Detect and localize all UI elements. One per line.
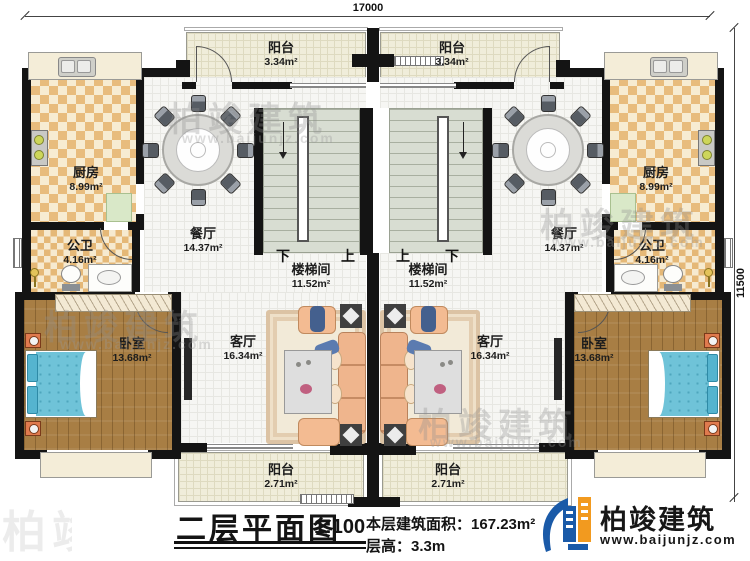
- chair-icon: [492, 143, 509, 158]
- toilet-tank: [664, 284, 682, 291]
- dining-table-center: [540, 142, 556, 158]
- table-decor: [306, 360, 311, 365]
- stair-direction-down-left: 下: [276, 246, 290, 266]
- floor-height-label: 层高：: [366, 538, 411, 555]
- burner: [702, 135, 712, 145]
- table-decor: [440, 362, 445, 367]
- sliding-door: [207, 444, 293, 449]
- room-label-kitchen-left: 厨房 8.99m²: [69, 166, 102, 193]
- burner: [702, 150, 712, 160]
- stair-railing: [437, 116, 449, 242]
- room-label-stairwell-right: 楼梯间 11.52m²: [408, 263, 447, 290]
- pillow-icon: [707, 354, 718, 382]
- window: [290, 83, 366, 88]
- wall-segment: [22, 222, 104, 230]
- wall-segment: [182, 82, 196, 89]
- title-underline: [174, 541, 366, 544]
- wall-segment: [15, 292, 24, 459]
- balcony-rail: [379, 27, 563, 31]
- room-label-living-right: 客厅 16.34m²: [470, 335, 509, 362]
- pillow-icon: [707, 386, 718, 414]
- sink-basin: [669, 60, 683, 73]
- room-label-living-left: 客厅 16.34m²: [223, 335, 262, 362]
- room-label-balcony-bottom-left: 阳台 2.71m²: [264, 463, 297, 490]
- stair-arrow-head: [459, 152, 467, 159]
- wall-segment: [367, 253, 379, 445]
- room-label-balcony-top-right: 阳台 3.34m²: [435, 41, 468, 68]
- pillow-icon: [27, 386, 38, 414]
- wall-segment: [232, 82, 292, 89]
- watermark-text: 柏竣建筑: [2, 496, 72, 560]
- title-underline: [174, 547, 366, 549]
- nightstand-icon: [25, 333, 41, 348]
- room-label-bedroom-right: 卧室 13.68m²: [574, 337, 613, 364]
- burner: [34, 150, 44, 160]
- pillow-icon: [27, 354, 38, 382]
- dimension-line-top: [25, 16, 710, 17]
- room-label-stairwell-left: 楼梯间 11.52m²: [291, 263, 330, 290]
- wall-segment: [132, 230, 140, 292]
- watermark-url: www.baijunjz.com: [60, 336, 213, 352]
- bathroom-sink-icon: [621, 270, 645, 285]
- floor-height-value: 3.3m: [411, 538, 445, 555]
- wall-segment: [715, 68, 724, 298]
- window: [380, 83, 456, 88]
- nightstand-icon: [25, 421, 41, 436]
- kitchen-mat: [106, 193, 132, 222]
- wall-segment: [148, 450, 181, 459]
- door-leaf: [549, 46, 550, 82]
- burner: [34, 135, 44, 145]
- sink-basin: [61, 60, 75, 73]
- window: [724, 238, 733, 268]
- shower-stem: [34, 277, 36, 287]
- room-label-bath-left: 公卫 4.16m²: [63, 239, 96, 266]
- wall-segment: [454, 82, 514, 89]
- floor-height-text: 层高：3.3m: [366, 535, 445, 556]
- toilet-icon: [663, 265, 683, 283]
- sink-basin: [653, 60, 667, 73]
- bay-window: [594, 452, 706, 478]
- tv-icon: [554, 338, 562, 400]
- balcony-rail: [184, 27, 368, 31]
- brand-url: www.baijunjz.com: [600, 532, 736, 547]
- wall-segment: [136, 77, 144, 184]
- brand-logo-icon: [538, 492, 598, 556]
- person-figure: [310, 306, 325, 332]
- watermark-url: www.baijunjz.com: [552, 234, 705, 250]
- bathroom-sink-icon: [97, 270, 121, 285]
- flower-decor: [300, 384, 312, 394]
- dimension-label-top: 17000: [340, 2, 396, 14]
- floor-area-value: 167.23m²: [471, 516, 535, 533]
- shower-stem: [708, 277, 710, 287]
- room-label-dining-left: 餐厅 14.37m²: [183, 227, 222, 254]
- toilet-icon: [61, 265, 81, 283]
- wall-segment: [176, 60, 190, 77]
- watermark-url: www.baijunjz.com: [430, 434, 583, 450]
- shower-head-icon: [30, 268, 39, 277]
- sink-basin: [77, 60, 91, 73]
- chair-icon: [142, 143, 159, 158]
- person-figure: [421, 306, 436, 332]
- stair-direction-up-left: 上: [341, 246, 355, 266]
- chair-icon: [191, 189, 206, 206]
- dimension-label-right: 11500: [735, 248, 749, 318]
- stair-arrow-head: [279, 152, 287, 159]
- floor-area-label: 本层建筑面积：: [366, 516, 471, 533]
- wall-segment: [360, 108, 373, 255]
- floor-area-text: 本层建筑面积：167.23m²: [366, 513, 535, 534]
- logo-graphic: [538, 492, 598, 556]
- stairwell-right-floor: [389, 108, 483, 253]
- room-label-kitchen-right: 厨房 8.99m²: [639, 166, 672, 193]
- stair-arrow: [463, 122, 464, 154]
- flower-decor: [434, 384, 446, 394]
- door-leaf: [196, 46, 197, 82]
- sofa-icon: [338, 332, 366, 434]
- table-decor: [296, 362, 301, 367]
- room-label-balcony-top-left: 阳台 3.34m²: [264, 41, 297, 68]
- bay-window: [40, 452, 152, 478]
- wall-segment: [556, 60, 570, 77]
- armchair-icon: [298, 418, 340, 446]
- wall-segment: [483, 108, 492, 255]
- bed-sheet-fold: [650, 352, 665, 416]
- window: [13, 238, 22, 268]
- bed-sheet-fold: [80, 352, 95, 416]
- chair-icon: [541, 95, 556, 112]
- wall-segment: [602, 77, 610, 184]
- wall-segment: [722, 292, 731, 459]
- room-label-balcony-bottom-right: 阳台 2.71m²: [431, 463, 464, 490]
- wall-segment: [22, 68, 31, 298]
- watermark-url: www.baijunjz.com: [182, 130, 335, 146]
- chair-icon: [587, 143, 604, 158]
- sofa-icon: [380, 332, 408, 434]
- wall-segment: [550, 82, 564, 89]
- wardrobe-icon: [574, 294, 691, 312]
- wall-segment: [352, 54, 394, 67]
- wall-segment: [181, 443, 207, 452]
- table-decor: [448, 360, 453, 365]
- window: [300, 494, 354, 504]
- nightstand-icon: [704, 421, 720, 436]
- plan-scale: 1:100: [314, 516, 365, 539]
- nightstand-icon: [704, 333, 720, 348]
- wall-segment: [348, 497, 400, 507]
- shower-head-icon: [704, 268, 713, 277]
- floor-plan-canvas: 17000 11500: [0, 0, 750, 561]
- toilet-tank: [62, 284, 80, 291]
